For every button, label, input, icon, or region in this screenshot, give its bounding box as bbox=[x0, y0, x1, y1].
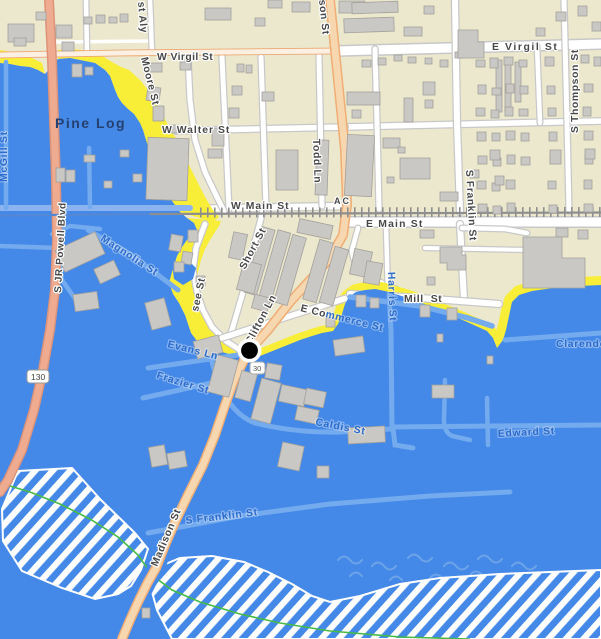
svg-text:Pine Log: Pine Log bbox=[55, 115, 126, 131]
svg-text:E Main St: E Main St bbox=[366, 219, 424, 230]
svg-text:Mill St: Mill St bbox=[404, 294, 442, 305]
svg-text:E Virgil St: E Virgil St bbox=[492, 42, 559, 53]
svg-text:Clarendon: Clarendon bbox=[556, 339, 601, 350]
svg-text:Todd Ln: Todd Ln bbox=[310, 139, 323, 184]
svg-text:130: 130 bbox=[31, 372, 45, 382]
svg-text:McGill St: McGill St bbox=[0, 131, 10, 182]
svg-text:W Main St: W Main St bbox=[231, 201, 290, 212]
svg-text:W Virgil St: W Virgil St bbox=[157, 52, 213, 63]
svg-text:Harris St: Harris St bbox=[385, 272, 398, 322]
svg-text:S Thompson St: S Thompson St bbox=[570, 49, 581, 133]
svg-text:AC: AC bbox=[334, 196, 351, 206]
svg-text:W Walter St: W Walter St bbox=[162, 125, 230, 136]
svg-text:30: 30 bbox=[253, 364, 261, 373]
